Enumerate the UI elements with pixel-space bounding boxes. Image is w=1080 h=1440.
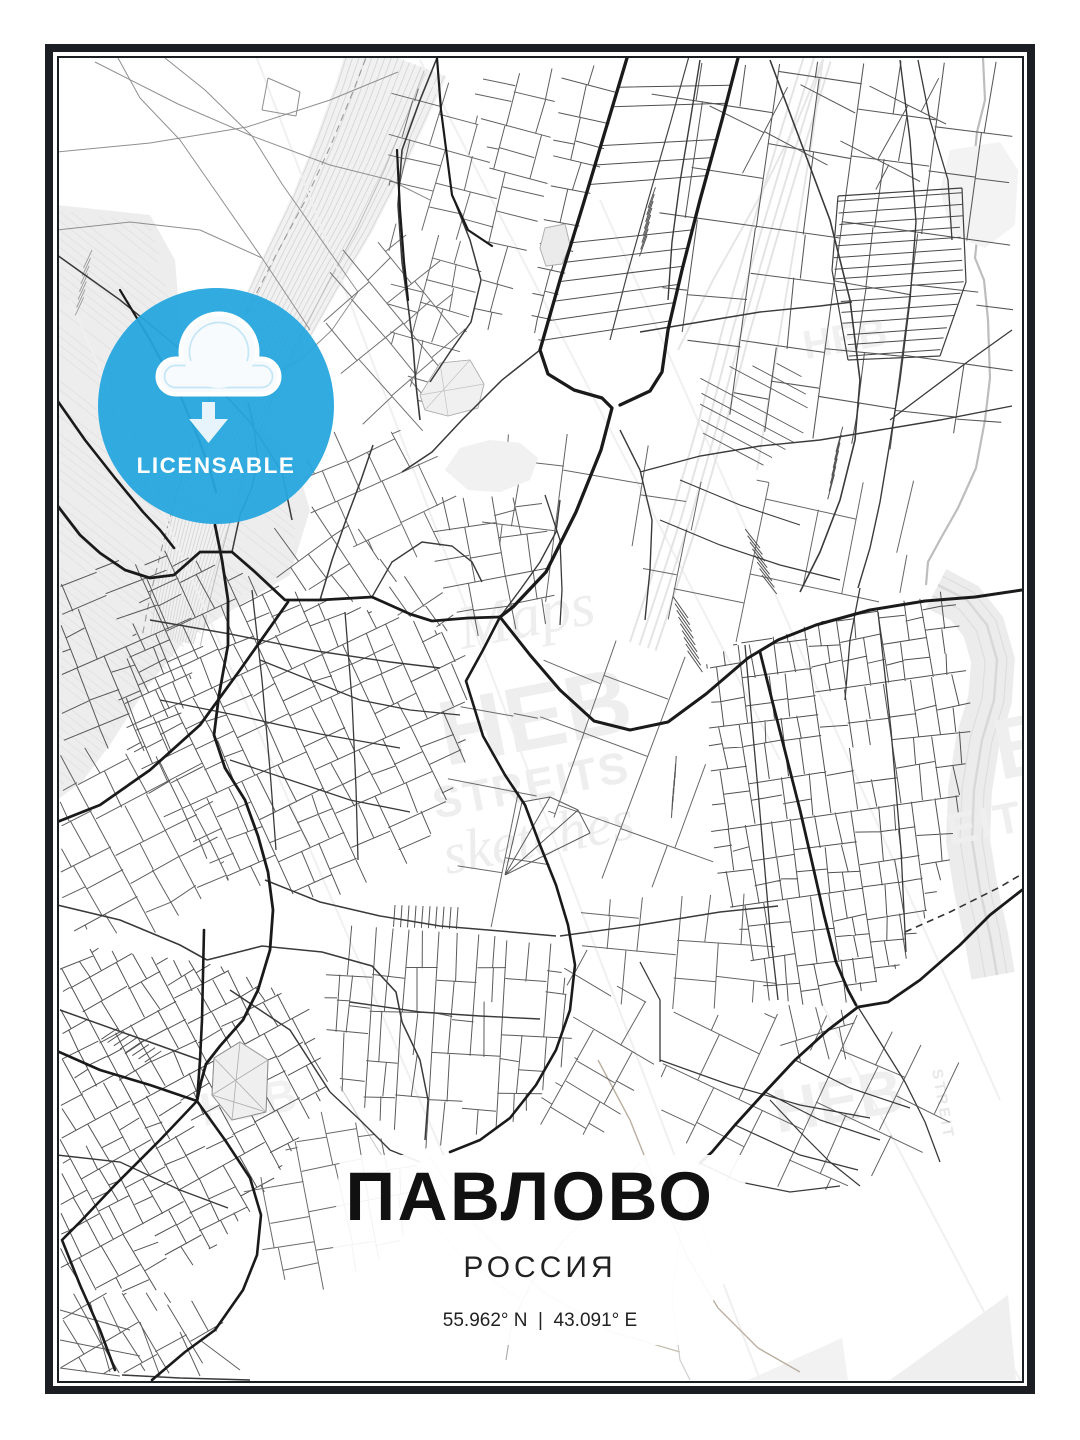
svg-text:LICENSABLE: LICENSABLE [137, 453, 296, 478]
svg-text:55.962° N | 43.091° E: 55.962° N | 43.091° E [443, 1310, 637, 1331]
svg-text:ПАВЛОВО: ПАВЛОВО [346, 1158, 715, 1235]
svg-text:РОССИЯ: РОССИЯ [463, 1251, 616, 1284]
